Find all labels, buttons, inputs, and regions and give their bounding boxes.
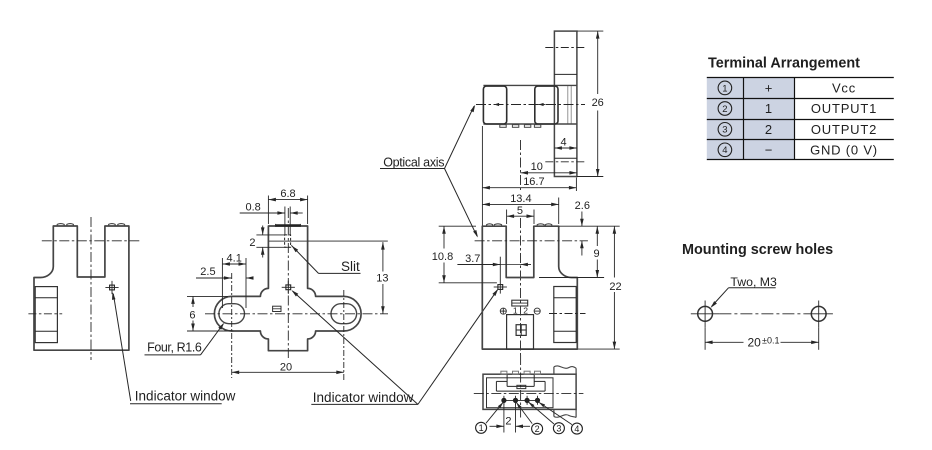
svg-text:2: 2 [722, 104, 727, 115]
svg-text:6: 6 [189, 309, 195, 321]
svg-text:Slit: Slit [341, 259, 360, 274]
svg-text:4: 4 [722, 145, 727, 156]
svg-text:Terminal Arrangement: Terminal Arrangement [708, 56, 860, 72]
svg-text:4.1: 4.1 [227, 252, 242, 264]
svg-text:Mounting screw holes: Mounting screw holes [682, 242, 833, 258]
svg-text:20: 20 [280, 361, 292, 373]
svg-text:10: 10 [531, 161, 543, 173]
svg-text:2: 2 [505, 416, 511, 428]
svg-text:2: 2 [523, 305, 528, 315]
svg-text:2: 2 [765, 122, 772, 137]
svg-text:1: 1 [479, 423, 484, 433]
svg-text:Vcc: Vcc [832, 81, 856, 96]
svg-text:2: 2 [535, 424, 540, 434]
svg-text:1: 1 [765, 101, 772, 116]
svg-text:Two, M3: Two, M3 [730, 275, 777, 289]
svg-text:OUTPUT1: OUTPUT1 [811, 101, 877, 116]
svg-text:1: 1 [722, 83, 727, 94]
svg-text:Indicator window: Indicator window [313, 390, 414, 405]
svg-text:4: 4 [560, 137, 566, 149]
svg-text:OUTPUT2: OUTPUT2 [811, 122, 877, 137]
svg-text:22: 22 [609, 281, 621, 293]
svg-text:1: 1 [513, 305, 518, 315]
svg-text:6.8: 6.8 [280, 188, 295, 200]
svg-text:10.8: 10.8 [432, 251, 453, 263]
svg-text:Indicator window: Indicator window [135, 389, 236, 404]
svg-text:Four, R1.6: Four, R1.6 [147, 341, 202, 355]
svg-text:+: + [765, 81, 773, 96]
svg-text:9: 9 [593, 248, 599, 260]
svg-text:3.7: 3.7 [465, 253, 480, 265]
svg-text:−: − [765, 142, 773, 157]
svg-text:16.7: 16.7 [523, 176, 544, 188]
svg-text:4: 4 [574, 424, 579, 434]
svg-text:13: 13 [376, 273, 388, 285]
svg-text:±0.1: ±0.1 [762, 335, 779, 345]
svg-text:3: 3 [556, 423, 561, 433]
svg-text:20: 20 [748, 336, 762, 350]
svg-text:2: 2 [249, 237, 255, 249]
svg-text:26: 26 [592, 97, 604, 109]
svg-text:3: 3 [722, 125, 727, 136]
svg-text:2.6: 2.6 [575, 200, 590, 212]
svg-text:0.8: 0.8 [246, 202, 261, 214]
svg-text:GND (0 V): GND (0 V) [810, 142, 878, 157]
svg-text:2.5: 2.5 [200, 266, 215, 278]
svg-text:Optical axis: Optical axis [383, 156, 444, 170]
svg-text:13.4: 13.4 [510, 193, 531, 205]
svg-text:5: 5 [517, 205, 523, 217]
